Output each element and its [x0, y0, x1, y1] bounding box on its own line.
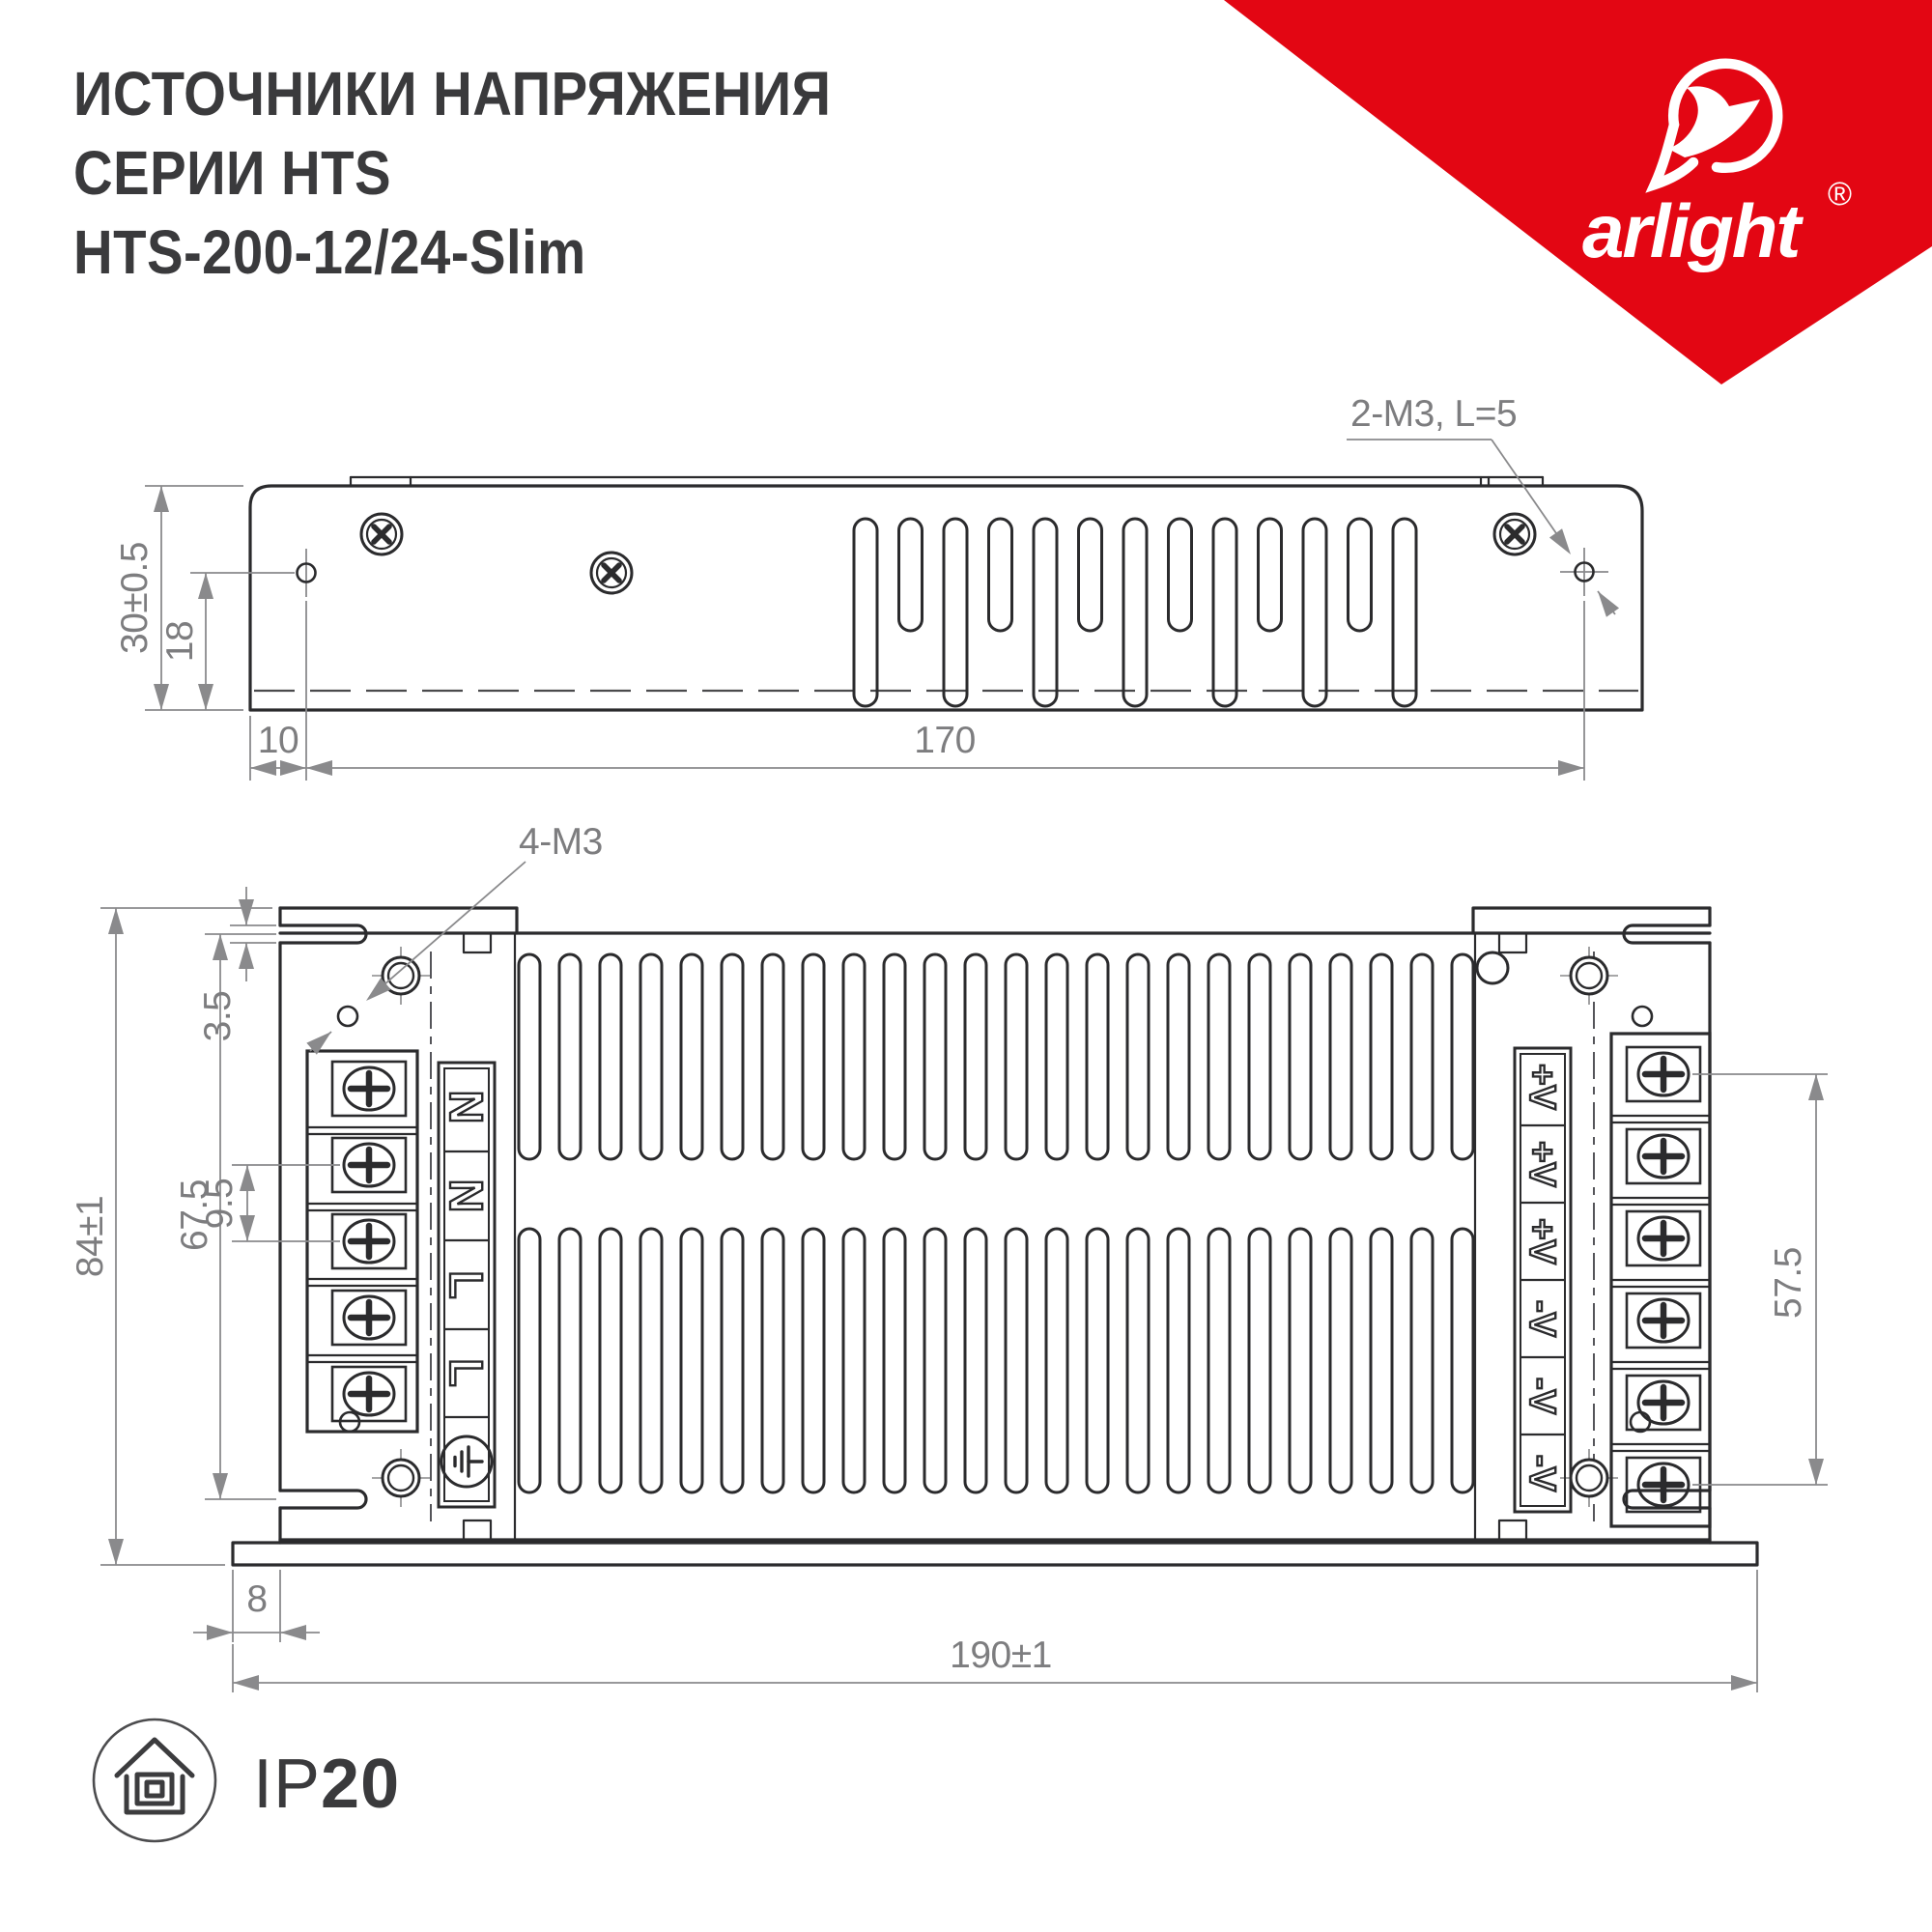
- dim-label-3-5: 3.5: [197, 991, 239, 1042]
- dim-label-30: 30±0.5: [114, 542, 156, 654]
- title-line-1: ИСТОЧНИКИ НАПРЯЖЕНИЯ: [73, 54, 831, 133]
- input-label-n2: N: [440, 1179, 491, 1213]
- title-line-2: СЕРИИ HTS: [73, 133, 831, 213]
- cover-hole: [1477, 952, 1508, 983]
- mount-screw-top-left: [372, 947, 430, 1005]
- output-screw-6: [1627, 1458, 1700, 1512]
- input-screw-3: [332, 1214, 406, 1268]
- ip-prefix: IP: [253, 1746, 321, 1823]
- dim-8: 8: [193, 1570, 320, 1642]
- output-label-3: +V: [1521, 1218, 1562, 1264]
- dim-57-5: 57.5: [1692, 1074, 1828, 1485]
- ip-rating: IP20: [253, 1745, 400, 1824]
- input-screw-5: [332, 1367, 406, 1421]
- cover-edges: [464, 933, 1526, 1540]
- callout-2-m3: 2-M3, L=5: [1347, 393, 1619, 617]
- input-screw-1: [332, 1062, 406, 1116]
- mount-screw-bottom-left: [372, 1449, 430, 1507]
- dim-18: 18: [159, 573, 295, 710]
- brand-corner: arlight ®: [1224, 0, 1932, 384]
- output-screw-3: [1627, 1211, 1700, 1265]
- side-hole-right: [1560, 548, 1608, 596]
- ground-icon: [441, 1436, 492, 1487]
- keyhole-slot-bottom-left: [280, 1491, 366, 1508]
- dim-label-190: 190±1: [950, 1634, 1052, 1676]
- input-label-strip: N N L L: [439, 1063, 495, 1507]
- input-label-n1: N: [440, 1091, 491, 1124]
- side-hole-left: [298, 549, 316, 597]
- input-screw-2: [332, 1138, 406, 1192]
- dim-label-170: 170: [914, 720, 976, 761]
- dim-190: 190±1: [233, 1570, 1757, 1692]
- ip-value: 20: [321, 1746, 400, 1823]
- side-view: 30±0.5 18 10: [114, 393, 1642, 781]
- input-label-l1: L: [440, 1270, 491, 1298]
- callout-2-m3-label: 2-M3, L=5: [1350, 393, 1517, 435]
- output-label-5: -V: [1521, 1378, 1562, 1415]
- output-screw-5: [1627, 1376, 1700, 1430]
- brand-triangle: [1224, 0, 1932, 384]
- datasheet-page: ИСТОЧНИКИ НАПРЯЖЕНИЯ СЕРИИ HTS HTS-200-1…: [0, 0, 1932, 1932]
- registered-mark: ®: [1828, 176, 1852, 213]
- brand-wordmark: arlight: [1582, 188, 1804, 273]
- side-screw-icon-mid: [591, 553, 632, 593]
- dim-3-5: 3.5: [197, 887, 276, 1041]
- ip20-badge: [94, 1719, 215, 1841]
- dim-label-9-5: 9.5: [199, 1179, 241, 1230]
- top-vent-slots-upper: [519, 954, 1473, 1159]
- output-label-6: -V: [1521, 1455, 1562, 1492]
- dim-label-10: 10: [258, 720, 298, 761]
- title-line-3: HTS-200-12/24-Slim: [73, 213, 831, 292]
- dim-label-18: 18: [159, 621, 201, 662]
- dim-30: 30±0.5: [114, 486, 243, 710]
- top-view: N N L L: [70, 821, 1828, 1692]
- output-label-2: +V: [1521, 1141, 1562, 1187]
- house-icon: [117, 1740, 192, 1812]
- page-title: ИСТОЧНИКИ НАПРЯЖЕНИЯ СЕРИИ HTS HTS-200-1…: [73, 54, 831, 292]
- thread-hole-top-left: [338, 1007, 357, 1026]
- side-screw-icon-right: [1494, 514, 1535, 554]
- side-screw-icon-left: [361, 514, 402, 554]
- output-screw-4: [1627, 1293, 1700, 1348]
- callout-4-m3-label: 4-M3: [519, 821, 603, 863]
- input-screw-4: [332, 1291, 406, 1345]
- output-screw-1: [1627, 1047, 1700, 1101]
- dim-label-8: 8: [246, 1578, 267, 1620]
- side-body-outline: [250, 486, 1642, 710]
- dim-label-84: 84±1: [70, 1196, 111, 1277]
- output-terminal-block: [1611, 1034, 1710, 1526]
- input-label-l2: L: [440, 1358, 491, 1386]
- side-vent-slots: [854, 519, 1416, 706]
- top-vent-slots-lower: [519, 1229, 1473, 1492]
- output-label-1: +V: [1521, 1064, 1562, 1110]
- thread-hole-top-right: [1633, 1007, 1652, 1026]
- output-label-strip: +V +V +V -V -V -V: [1515, 1048, 1571, 1512]
- output-screw-2: [1627, 1129, 1700, 1183]
- mount-screw-top-right: [1560, 947, 1618, 1005]
- mount-screw-bottom-right: [1560, 1449, 1618, 1507]
- output-label-4: -V: [1521, 1300, 1562, 1338]
- dim-84: 84±1: [70, 908, 272, 1565]
- dim-label-57-5: 57.5: [1768, 1247, 1809, 1319]
